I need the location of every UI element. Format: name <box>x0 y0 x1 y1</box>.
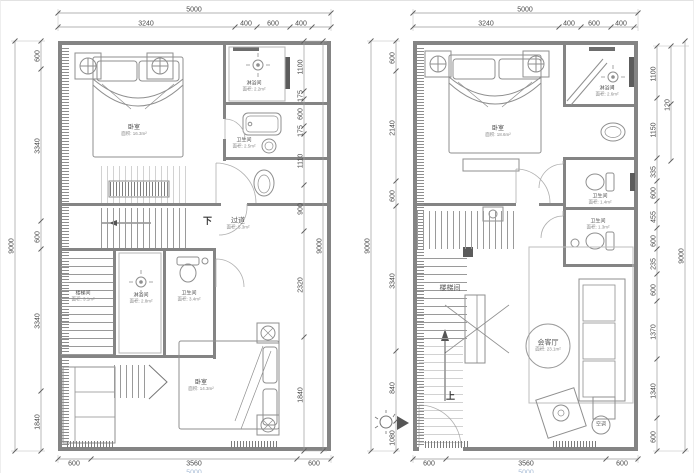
room-name: 过道 <box>231 217 245 224</box>
room-area: 面积: 2.6m² <box>595 92 618 97</box>
dim-label: 120 <box>665 99 672 111</box>
dim-label: 600 <box>298 108 305 120</box>
dim-label: 1110 <box>298 154 305 169</box>
toilet <box>586 173 614 191</box>
sink <box>262 139 276 153</box>
dim-label: 5000 <box>186 7 202 14</box>
room-label-bedroom: 卧室 面积: 18.6m² <box>484 126 512 138</box>
floor-vent <box>425 441 469 448</box>
room-name: 卧室 <box>492 126 504 132</box>
dim-label: 1100 <box>651 66 658 81</box>
bed-bench <box>463 159 519 171</box>
room-label-living: 会客厅 面积: 23.1m² <box>534 339 562 352</box>
bed <box>93 57 183 157</box>
room-name: 卫生间 <box>592 194 607 200</box>
dim-label: 5000 <box>517 7 533 14</box>
room-name: 卫生间 <box>236 138 251 144</box>
room-label-bathroom: 卫生间 面积: 1.3m² <box>585 220 611 231</box>
dim-label: 2140 <box>390 120 397 136</box>
room-label-corridor: 过道 面积: 5.3m² <box>225 217 251 230</box>
dim-label: 5000 <box>186 470 202 473</box>
room-label-shower: 淋浴间 面积: 2.6m² <box>594 87 620 98</box>
dim-label: 3560 <box>186 461 202 468</box>
dim-label: 9000 <box>317 238 324 254</box>
dim-label: 600 <box>35 231 42 243</box>
dim-label: 600 <box>651 284 658 296</box>
washbasin <box>601 123 625 141</box>
dim-label: 840 <box>390 382 397 394</box>
bed <box>449 55 541 153</box>
dim-label: 3560 <box>518 461 534 468</box>
room-name: 淋浴间 <box>133 293 148 299</box>
dim-label: 600 <box>68 461 80 468</box>
dim-label: 600 <box>651 187 658 199</box>
room-label-bathroom: 卫生间 面积: 1.4m² <box>587 195 613 206</box>
room-area: 面积: 1.4m² <box>588 200 611 205</box>
dim-label: 1840 <box>298 387 305 403</box>
shower-head-icon <box>229 47 285 101</box>
dim-label: 175 <box>298 125 305 137</box>
room-area: 面积: 2.5m² <box>232 144 255 149</box>
dim-label: 1150 <box>651 122 658 137</box>
label-down: 下 <box>203 217 213 227</box>
room-area: 面积: 3.1m² <box>71 297 94 302</box>
dim-label: 3240 <box>478 21 494 28</box>
stair-arrow <box>149 365 167 399</box>
dim-label: 1840 <box>35 414 42 430</box>
rug <box>529 247 633 403</box>
room-label-stairwell: 楼梯间 面积: 3.1m² <box>70 292 96 303</box>
room-name: 淋浴间 <box>246 81 261 87</box>
room-area: 面积: 16.3m² <box>121 132 147 137</box>
toilet <box>177 257 208 282</box>
floorplan-page: 5000 3240 400 600 400 9000 600 3340 600 … <box>0 0 694 473</box>
dim-label: 455 <box>651 211 658 223</box>
room-label-bedroom: 卧室 面积: 16.3m² <box>120 125 148 137</box>
room-label-shower: 淋浴间 面积: 2.8m² <box>128 294 154 305</box>
ac-unit-icon <box>257 323 279 343</box>
room-name: 楼梯间 <box>75 291 90 297</box>
dim-label: 600 <box>390 52 397 64</box>
room-area: 面积: 14.3m² <box>188 387 214 392</box>
dim-label: 400 <box>240 21 252 28</box>
dim-label: 1100 <box>298 59 305 74</box>
side-table <box>593 397 615 419</box>
sofa <box>63 367 115 443</box>
dim-label: 235 <box>651 258 658 270</box>
dim-label: 900 <box>298 203 305 215</box>
dim-label: 600 <box>308 461 320 468</box>
label-ac: 空调 <box>596 422 606 428</box>
dim-label: 400 <box>563 21 575 28</box>
room-area: 面积: 18.6m² <box>485 133 511 138</box>
dim-label: 600 <box>35 50 42 62</box>
sofa <box>579 279 625 401</box>
stair-treads <box>417 251 467 339</box>
room-name: 淋浴间 <box>599 86 614 92</box>
stair-treads <box>61 253 113 355</box>
room-area: 面积: 1.3m² <box>586 225 609 230</box>
room-area: 面积: 5.3m² <box>226 225 249 230</box>
room-label-bathroom: 卫生间 面积: 2.5m² <box>231 139 257 150</box>
dim-label: 2320 <box>298 277 305 293</box>
room-area: 面积: 23.1m² <box>535 347 561 352</box>
stair-hatch <box>114 365 148 398</box>
room-name: 卧室 <box>128 125 140 131</box>
fan-icon <box>425 51 451 77</box>
dim-label: 400 <box>295 21 307 28</box>
dim-label: 3340 <box>35 313 42 329</box>
bathtub <box>243 113 281 135</box>
dim-label: 3240 <box>138 21 154 28</box>
stair-treads <box>417 211 517 249</box>
dim-label: 9000 <box>679 248 686 264</box>
room-name: 卫生间 <box>590 219 605 225</box>
room-area: 面积: 2.2m² <box>242 87 265 92</box>
room-label-shower: 淋浴间 面积: 2.2m² <box>241 82 267 93</box>
dim-label: 175 <box>298 90 305 102</box>
dim-label: 600 <box>267 21 279 28</box>
floor-vent <box>67 441 113 448</box>
room-name: 楼梯间 <box>440 285 461 292</box>
stair-treads <box>101 208 187 248</box>
label-up: 上 <box>446 392 456 402</box>
room-name: 卫生间 <box>181 291 196 297</box>
dim-label: 3340 <box>35 138 42 154</box>
dim-label: 1340 <box>651 383 658 399</box>
dim-label: 600 <box>651 431 658 443</box>
room-area: 面积: 2.8m² <box>129 299 152 304</box>
room-name: 会客厅 <box>538 339 559 346</box>
room-label-bedroom: 卧室 面积: 14.3m² <box>187 380 215 392</box>
dim-label: 9000 <box>365 238 372 254</box>
dim-label: 1080 <box>390 430 397 446</box>
room-label-stairwell: 楼梯间 <box>440 285 461 293</box>
washbasin <box>254 170 274 196</box>
floor-vent <box>553 441 597 448</box>
stair-treads <box>101 166 187 203</box>
dim-label: 600 <box>651 235 658 247</box>
insulation-strip <box>62 47 69 445</box>
dim-label: 600 <box>390 190 397 202</box>
shower-head-icon <box>567 59 625 105</box>
floor-vent <box>231 441 277 448</box>
dim-label: 600 <box>588 21 600 28</box>
room-name: 卧室 <box>195 380 207 386</box>
dim-label: 9000 <box>9 238 16 254</box>
dim-label: 600 <box>423 461 435 468</box>
stair-treads <box>419 341 463 443</box>
dim-label: 3340 <box>390 273 397 289</box>
dim-label: 600 <box>616 461 628 468</box>
dim-label: 5000 <box>518 470 534 473</box>
dim-label: 1370 <box>651 324 658 340</box>
dim-label: 335 <box>651 166 658 178</box>
room-label-bathroom: 卫生间 面积: 3.4m² <box>176 292 202 303</box>
dim-label: 400 <box>615 21 627 28</box>
room-area: 面积: 3.4m² <box>177 297 200 302</box>
